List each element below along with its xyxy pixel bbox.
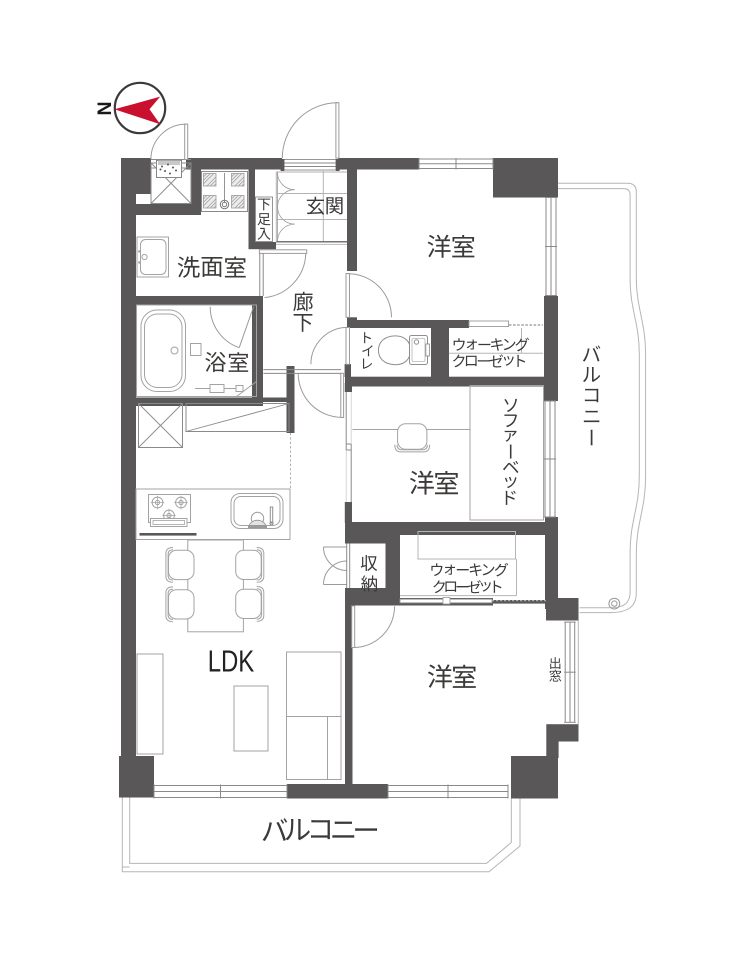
svg-text:LDK: LDK [208, 645, 255, 678]
svg-text:N: N [94, 101, 116, 115]
